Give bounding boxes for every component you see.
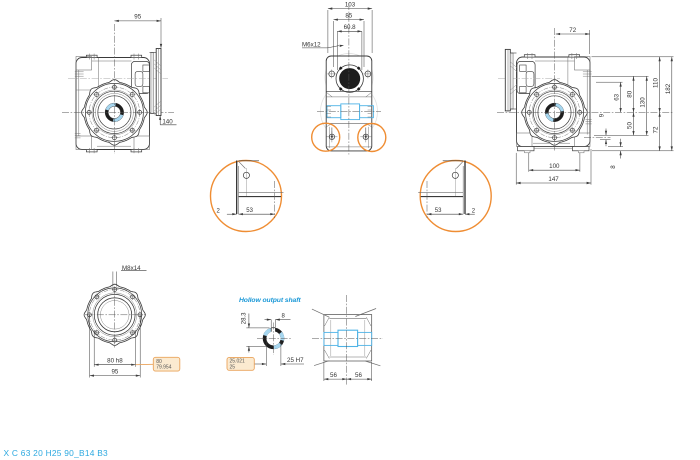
svg-text:85: 85 bbox=[345, 12, 352, 19]
svg-text:130: 130 bbox=[640, 97, 647, 108]
svg-text:60.8: 60.8 bbox=[344, 24, 357, 31]
svg-text:M6x12: M6x12 bbox=[302, 41, 321, 48]
svg-text:100: 100 bbox=[549, 163, 560, 170]
svg-text:8: 8 bbox=[610, 165, 617, 169]
svg-text:147: 147 bbox=[548, 176, 559, 183]
svg-text:50: 50 bbox=[627, 122, 634, 129]
svg-text:25: 25 bbox=[230, 364, 236, 370]
svg-text:28.3: 28.3 bbox=[242, 312, 248, 324]
svg-text:80: 80 bbox=[627, 90, 634, 97]
svg-text:Hollow output shaft: Hollow output shaft bbox=[239, 297, 301, 304]
svg-text:25 H7: 25 H7 bbox=[287, 357, 304, 364]
svg-text:80 h8: 80 h8 bbox=[107, 358, 123, 365]
svg-text:140: 140 bbox=[162, 118, 173, 125]
svg-text:53: 53 bbox=[435, 208, 442, 214]
svg-text:72: 72 bbox=[653, 126, 660, 133]
svg-text:95: 95 bbox=[134, 14, 141, 21]
svg-text:79.954: 79.954 bbox=[156, 365, 172, 371]
svg-text:X C 63 20 H25 90_B14 B3: X C 63 20 H25 90_B14 B3 bbox=[4, 448, 109, 458]
svg-text:9: 9 bbox=[599, 113, 606, 117]
svg-text:56: 56 bbox=[330, 372, 337, 379]
svg-text:182: 182 bbox=[665, 83, 672, 94]
svg-text:110: 110 bbox=[653, 78, 660, 88]
svg-text:103: 103 bbox=[345, 1, 356, 8]
svg-text:56: 56 bbox=[355, 372, 362, 379]
svg-text:53: 53 bbox=[246, 208, 253, 214]
svg-text:95: 95 bbox=[111, 368, 118, 375]
svg-text:63: 63 bbox=[614, 93, 621, 100]
svg-text:72: 72 bbox=[569, 27, 576, 34]
